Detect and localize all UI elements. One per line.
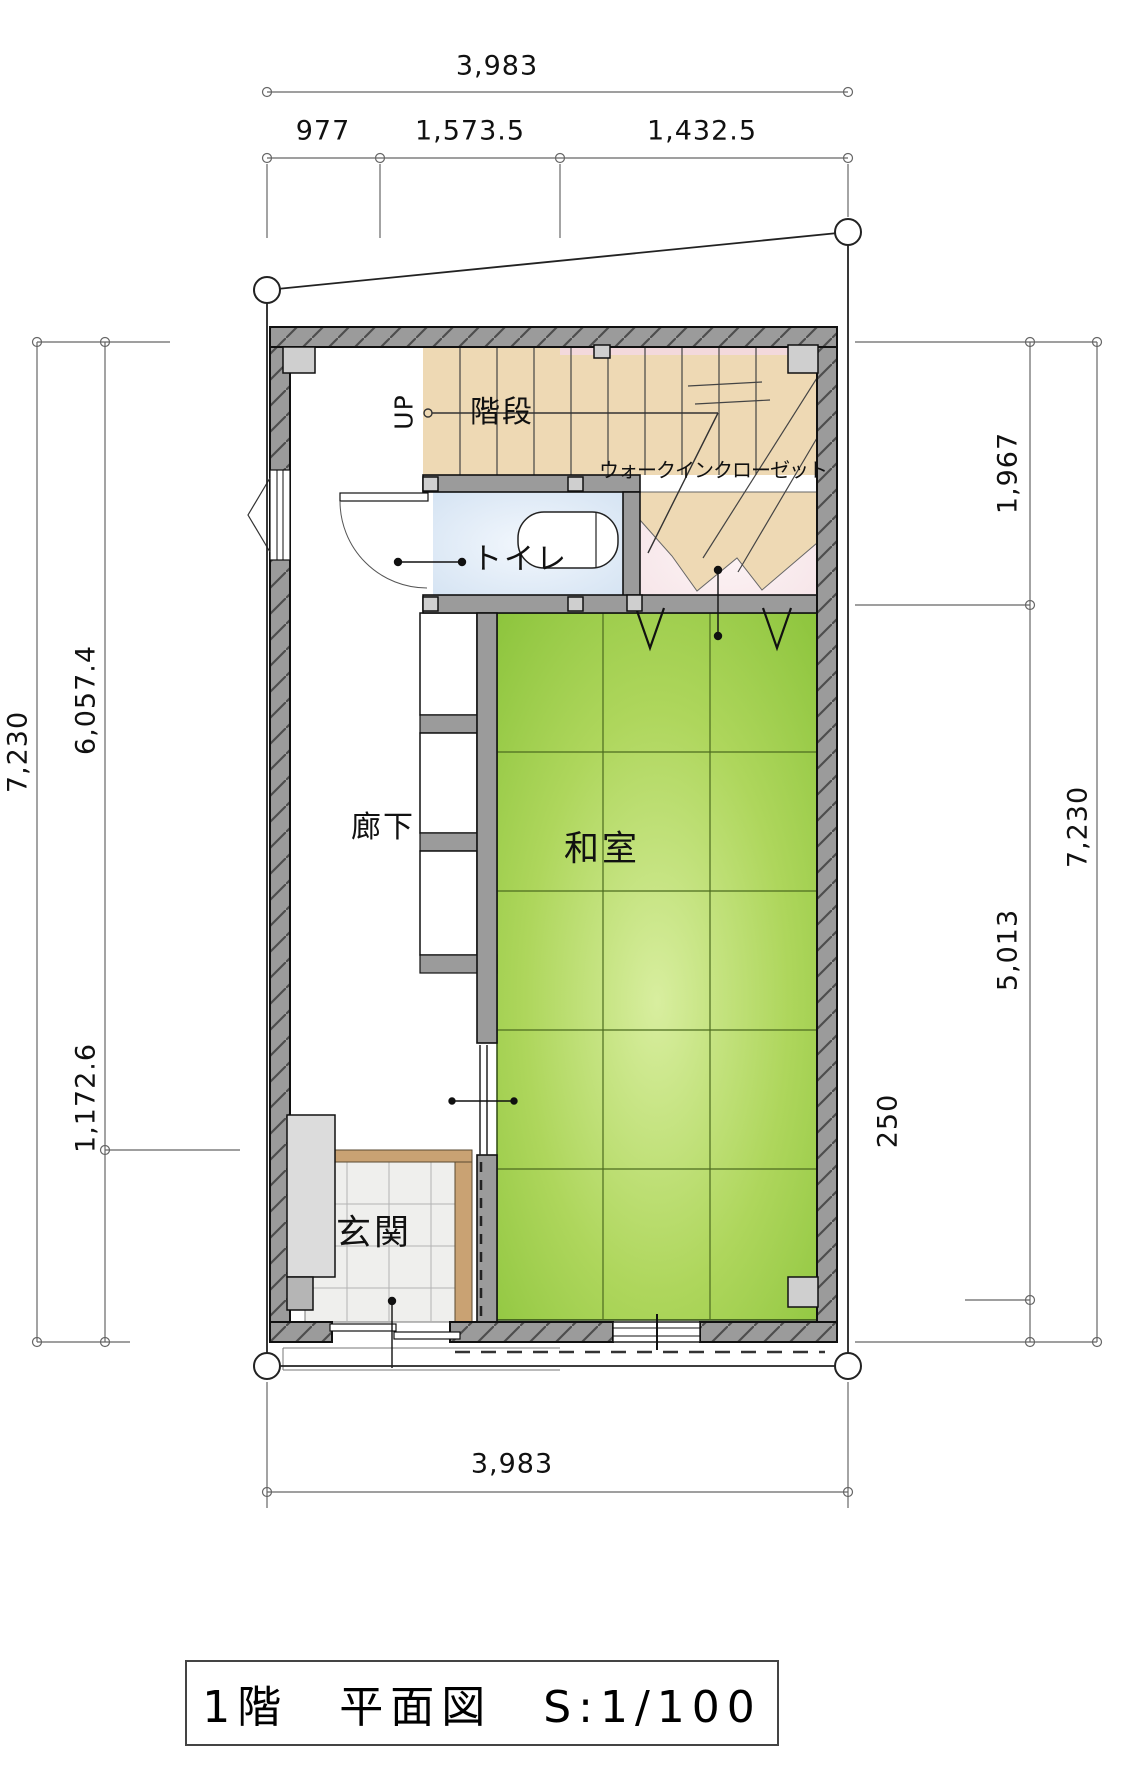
dim-right-seg-3: 250: [875, 1094, 902, 1149]
label-stairs-up: UP: [392, 394, 417, 429]
dim-right-seg-1: 1,967: [995, 432, 1022, 514]
floor-plan-sheet: 3,983 977 1,573.5 1,432.5 7,230 6,057.4 …: [0, 0, 1125, 1783]
dim-left-seg-1: 6,057.4: [73, 645, 100, 755]
tatami-floor: [497, 613, 817, 1320]
dim-top-total: 3,983: [456, 53, 538, 80]
label-washitsu: 和室: [564, 833, 640, 868]
label-stairs: 階段: [470, 398, 534, 428]
title-text: 1階 平面図 S:1/100: [202, 1671, 762, 1735]
dim-left-total: 7,230: [5, 711, 32, 793]
title-block: 1階 平面図 S:1/100: [185, 1660, 779, 1746]
dim-right-total: 7,230: [1065, 786, 1092, 868]
dim-left-seg-2: 1,172.6: [73, 1043, 100, 1153]
label-wic: ウォークインクローゼット: [599, 460, 827, 480]
dim-bottom-total: 3,983: [471, 1451, 553, 1478]
label-genkan: 玄関: [336, 1217, 412, 1252]
toilet-door: [340, 493, 428, 588]
label-corridor: 廊下: [351, 813, 415, 843]
sliding-door-tatami: [480, 1045, 487, 1155]
label-toilet: トイレ: [472, 545, 568, 575]
dim-top-seg-2: 1,573.5: [415, 118, 525, 145]
dim-top-seg-1: 977: [296, 118, 351, 145]
dim-right-seg-2: 5,013: [995, 909, 1022, 991]
dim-top-seg-3: 1,432.5: [647, 118, 757, 145]
floor-plan-drawing: [0, 0, 1125, 1783]
